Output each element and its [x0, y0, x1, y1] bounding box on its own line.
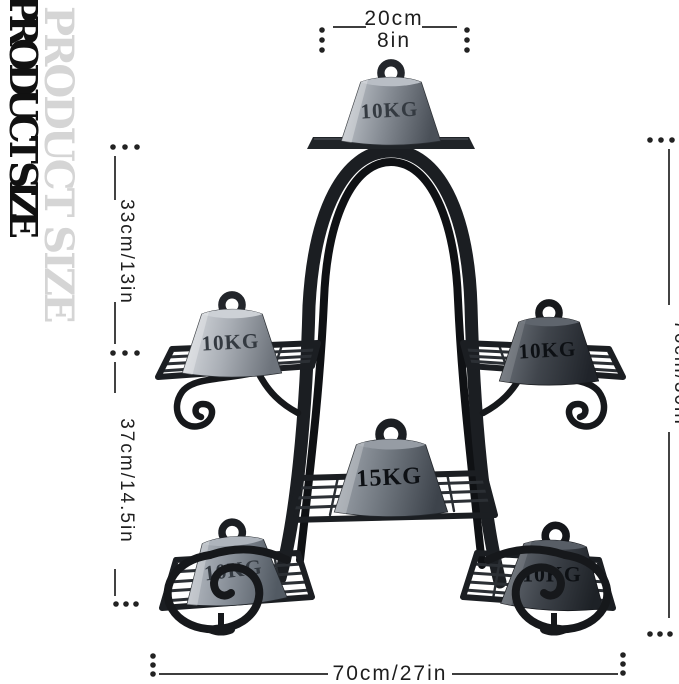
weight-label: 10KG: [360, 97, 419, 124]
dimension-top-cm-label: 20cm: [364, 7, 423, 30]
dimension-total-width-label: 70cm/27in: [333, 662, 448, 684]
product-size-title: PRODUCT SIZE: [1, 0, 46, 231]
weight-label: 10KG: [518, 337, 577, 364]
plant-stand-illustration: 10KG 10KG 10KG 15KG: [0, 0, 679, 684]
weight-mid-left: 10KG: [182, 295, 281, 377]
dimension-top-in-label: 8in: [377, 29, 411, 52]
weight-center: 15KG: [334, 423, 447, 517]
dimension-top-width: 20cm 8in: [319, 7, 470, 53]
weight-mid-right: 10KG: [499, 303, 598, 385]
left-scroll-arm: [258, 372, 298, 413]
left-foot: [207, 625, 235, 636]
dimension-lower-height: 37cm/14.5in: [113, 362, 139, 607]
dimension-total-width: 70cm/27in: [150, 652, 626, 684]
weight-top: 10KG: [341, 63, 440, 145]
dimension-upper-height: 33cm/13in: [110, 144, 140, 356]
left-scroll-ornament: [177, 372, 258, 426]
right-foot: [540, 625, 568, 636]
weight-label: 10KG: [201, 329, 260, 356]
dimension-total-height: 76cm/30in: [647, 137, 679, 637]
dimension-lower-height-label: 37cm/14.5in: [116, 418, 137, 544]
weight-label: 15KG: [356, 462, 423, 492]
dimension-total-height-label: 76cm/30in: [670, 320, 679, 426]
product-size-diagram: PRODUCT SIZE PRODUCT SIZE: [0, 0, 679, 684]
dimension-upper-height-label: 33cm/13in: [116, 199, 137, 305]
